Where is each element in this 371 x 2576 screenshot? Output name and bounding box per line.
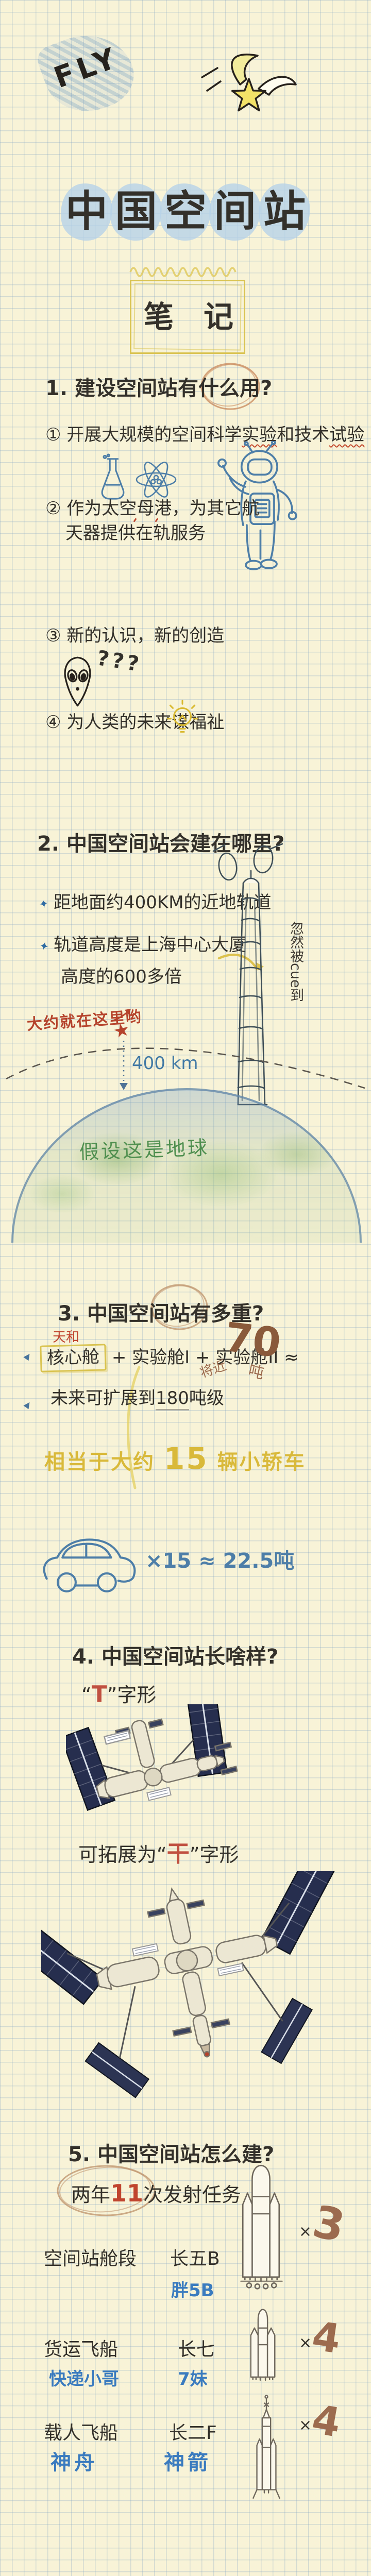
- q3-car-note-pre: 相当于大约: [44, 1450, 155, 1474]
- q4-title: 4. 中国空间站长啥样?: [72, 1643, 278, 1670]
- q2-altitude-label: 400 km: [132, 1052, 198, 1075]
- q1-point1-underlined2: 试验: [329, 425, 364, 445]
- star-bullet-icon: ✦: [38, 897, 50, 913]
- times-sign: ×: [299, 2333, 312, 2353]
- q3-weight-unit: 吨: [246, 1361, 265, 1383]
- q3-expand-pre: 未来可扩展到: [50, 1388, 156, 1409]
- q5-row-label: 空间站舱段: [44, 2247, 137, 2272]
- q2-title-pre: 2. 中国空间站会建在: [37, 832, 231, 856]
- alien-icon: [61, 655, 95, 713]
- q4-shape1-letter: T: [92, 1681, 107, 1707]
- q2-bullet2-line2: 高度的600多倍: [61, 965, 182, 988]
- q5-row-rocket: 长二F: [169, 2421, 217, 2446]
- q5-launch-count: 11: [110, 2179, 143, 2207]
- q4-shape2: 可拓展为“干”字形: [78, 1839, 239, 1869]
- q5-row-rocket-nick: 神箭: [164, 2449, 211, 2476]
- title-char: 站: [263, 184, 306, 240]
- q5-row-count: 3: [308, 2193, 350, 2256]
- q5-row-count: 4: [309, 2311, 344, 2366]
- q1-point1: ① 开展大规模的空间科学实验和技术试验: [45, 423, 364, 446]
- notes-box: 笔记: [130, 280, 245, 354]
- star-bullet-icon: ✦: [38, 939, 50, 955]
- q4-shape2-post: ”字形: [190, 1843, 239, 1866]
- q4-shape1-pre: “: [81, 1684, 92, 1706]
- q1-point1-pre: ① 开展大规模的空间科学: [45, 425, 242, 445]
- q5-row-label-nick: 神舟: [50, 2449, 98, 2476]
- q4-shape1-post: ”字形: [107, 1684, 157, 1706]
- q5-launch-post: 次发射任务: [143, 2183, 241, 2206]
- q5-row-label: 载人飞船: [44, 2421, 118, 2446]
- q4-shape2-pre: 可拓展为“: [78, 1843, 167, 1866]
- notes-label: 笔记: [144, 298, 263, 336]
- rocket-lm7-icon: [241, 2298, 283, 2386]
- q5-launches: 两年11次发射任务: [71, 2178, 241, 2209]
- q3-tianhe-label: 天和: [53, 1329, 79, 1347]
- q5-row-rocket-nick: 7妹: [178, 2368, 208, 2391]
- q3-core-module: 核心舱: [40, 1344, 106, 1372]
- q3-expand: 未来可扩展到180吨级: [50, 1387, 224, 1410]
- atom-icon: [134, 460, 178, 499]
- q3-car-note-post: 辆小轿车: [217, 1450, 306, 1474]
- lightbulb-icon: [166, 700, 199, 741]
- q1-point2-line2: 天器提供在轨服务: [65, 522, 206, 545]
- car-icon: [39, 1531, 140, 1597]
- altitude-arrow-icon: [117, 1040, 130, 1091]
- rocket-lm5b-icon: [236, 2147, 286, 2298]
- q5-row-label: 货运飞船: [44, 2338, 118, 2362]
- space-station-gan-icon: [41, 1871, 345, 2108]
- q5-row-count: 4: [308, 2394, 345, 2450]
- q5-row-rocket: 长五B: [170, 2247, 220, 2272]
- q5-launch-years: 两年: [71, 2183, 110, 2206]
- title-char: 国: [115, 184, 157, 240]
- q5-row-rocket-nick: 胖5B: [171, 2279, 214, 2302]
- q3-car-note: 相当于大约 15 辆小轿车: [44, 1439, 306, 1478]
- q1-point2-line1: ② 作为太空母港，为其它航: [45, 497, 259, 520]
- title-char: 中: [65, 184, 108, 240]
- title-char: 空: [164, 184, 207, 240]
- flask-icon: [98, 452, 128, 503]
- q3-car-math: ×15 ≈ 22.5吨: [145, 1548, 294, 1574]
- q3-expand-value: 180: [156, 1388, 189, 1411]
- q5-row-rocket: 长七: [178, 2338, 215, 2362]
- notebook-page: FLY 中国空间站 笔记 1. 建设空间站有什么用? ① 开展大规模的空间科学实…: [0, 0, 371, 2576]
- space-station-t-icon: [66, 1704, 241, 1846]
- q1-title: 1. 建设空间站有什么用?: [45, 375, 272, 402]
- rocket-lm2f-icon: [250, 2395, 282, 2500]
- q4-shape2-letter: 干: [167, 1841, 190, 1867]
- page-title: 中国空间站: [0, 184, 371, 240]
- earth-label: 假设这是地球: [79, 1136, 210, 1165]
- q3-car-note-num: 15: [164, 1441, 209, 1476]
- q1-alien-question: ???: [95, 645, 144, 678]
- earth-drawing: 假设这是地球: [11, 1088, 362, 1243]
- yellow-scribble-icon: [128, 258, 246, 278]
- q3-expand-post: 吨级: [189, 1388, 224, 1409]
- triangle-bullet-icon: ▲: [22, 1350, 33, 1362]
- q5-row-label-nick: 快递小哥: [49, 2368, 119, 2391]
- q1-point3: ③ 新的认识，新的创造: [45, 624, 224, 647]
- title-char: 间: [214, 184, 256, 240]
- winged-star-icon: [195, 47, 298, 130]
- triangle-bullet-icon: ▲: [22, 1398, 33, 1411]
